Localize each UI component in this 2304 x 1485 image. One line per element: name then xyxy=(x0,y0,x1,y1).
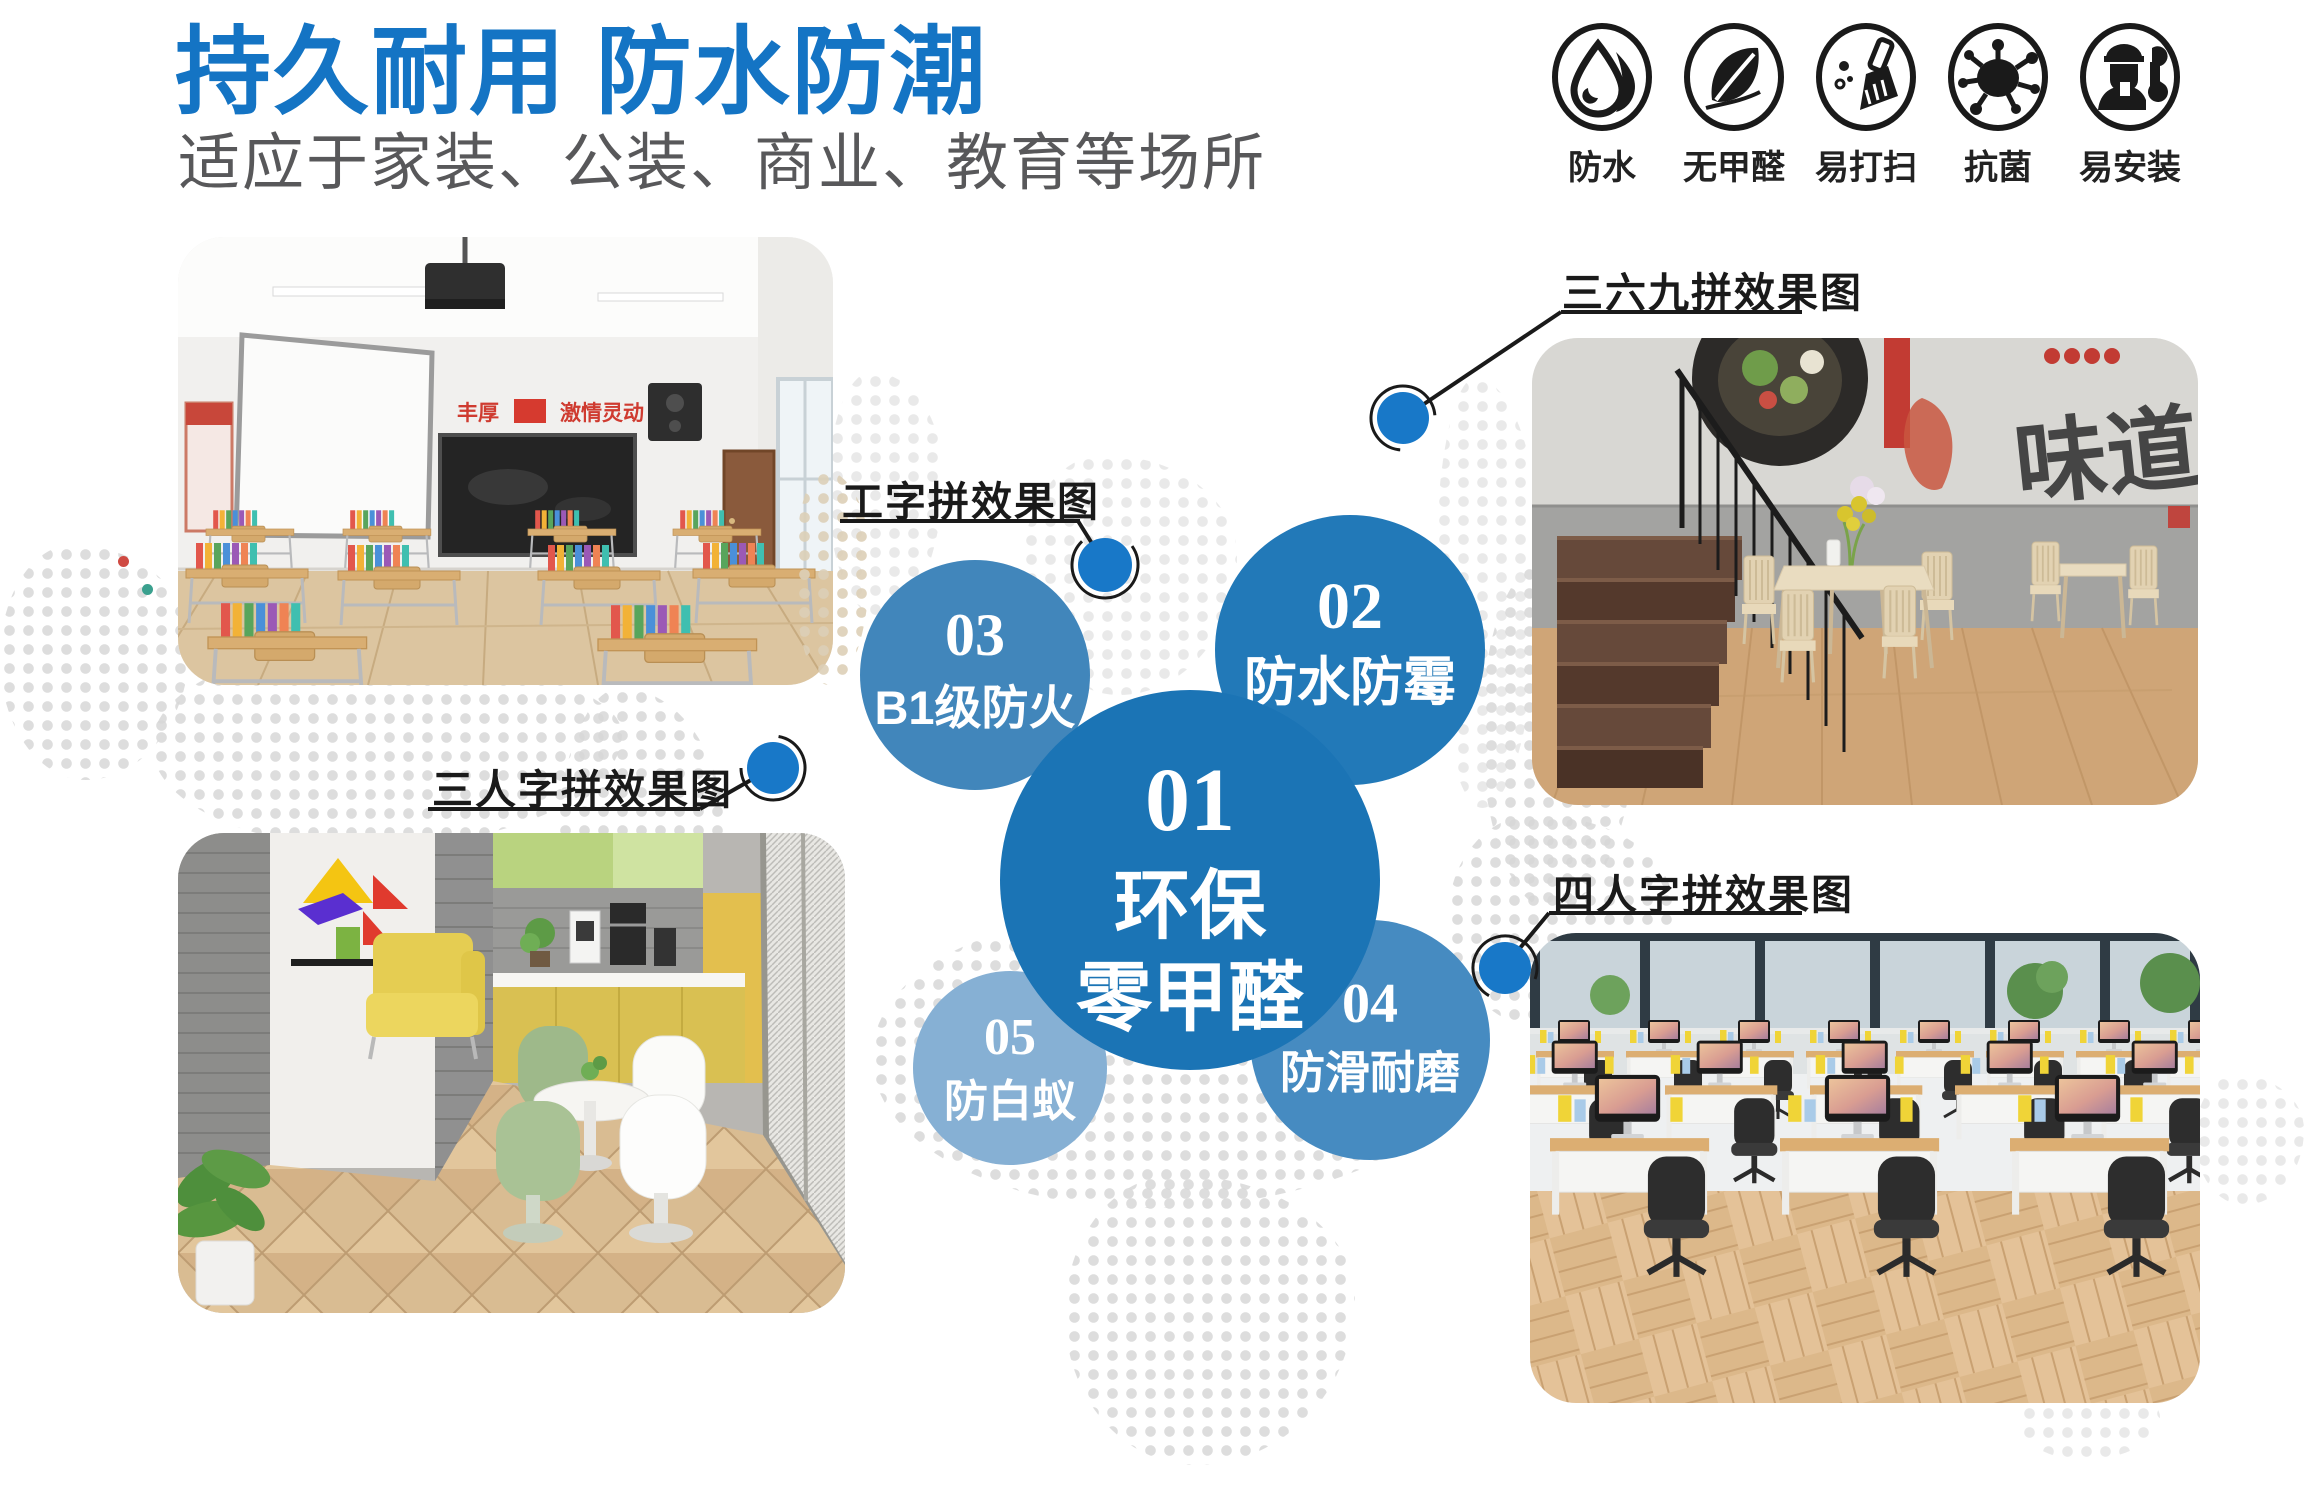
callout-label-herringbone-4: 四人字拼效果图 xyxy=(1553,861,1854,921)
bubble-label: 防白蚁 xyxy=(944,1077,1077,1126)
bubble-label: B1级防火 xyxy=(874,681,1075,734)
callout-label-herringbone-3: 三人字拼效果图 xyxy=(432,756,733,816)
bubble-number: 03 xyxy=(945,602,1005,668)
bubble-label-line2: 零甲醛 xyxy=(1076,956,1304,1041)
bubble-label-line1: 环保 xyxy=(1114,864,1267,949)
bubble-label: 防滑耐磨 xyxy=(1280,1047,1460,1098)
bubble-01: 01 环保 零甲醛 xyxy=(1000,690,1380,1070)
bubble-number: 02 xyxy=(1317,570,1383,643)
bubble-number: 05 xyxy=(984,1009,1036,1066)
bubble-number: 01 xyxy=(1145,751,1235,850)
callout-label-i-pattern: 工字拼效果图 xyxy=(842,468,1100,528)
bubble-label: 防水防霉 xyxy=(1244,653,1456,712)
bubble-number: 04 xyxy=(1342,973,1398,1035)
bubble-diagram-overlay: 03 B1级防火 02 防水防霉 04 防滑耐磨 05 防白蚁 01 环保 零甲… xyxy=(0,0,2304,1485)
callout-label-369-pattern: 三六九拼效果图 xyxy=(1562,259,1863,319)
promo-infographic-page: 持久耐用 防水防潮 适应于家装、公装、商业、教育等场所 防水 无甲醛 xyxy=(0,0,2304,1485)
